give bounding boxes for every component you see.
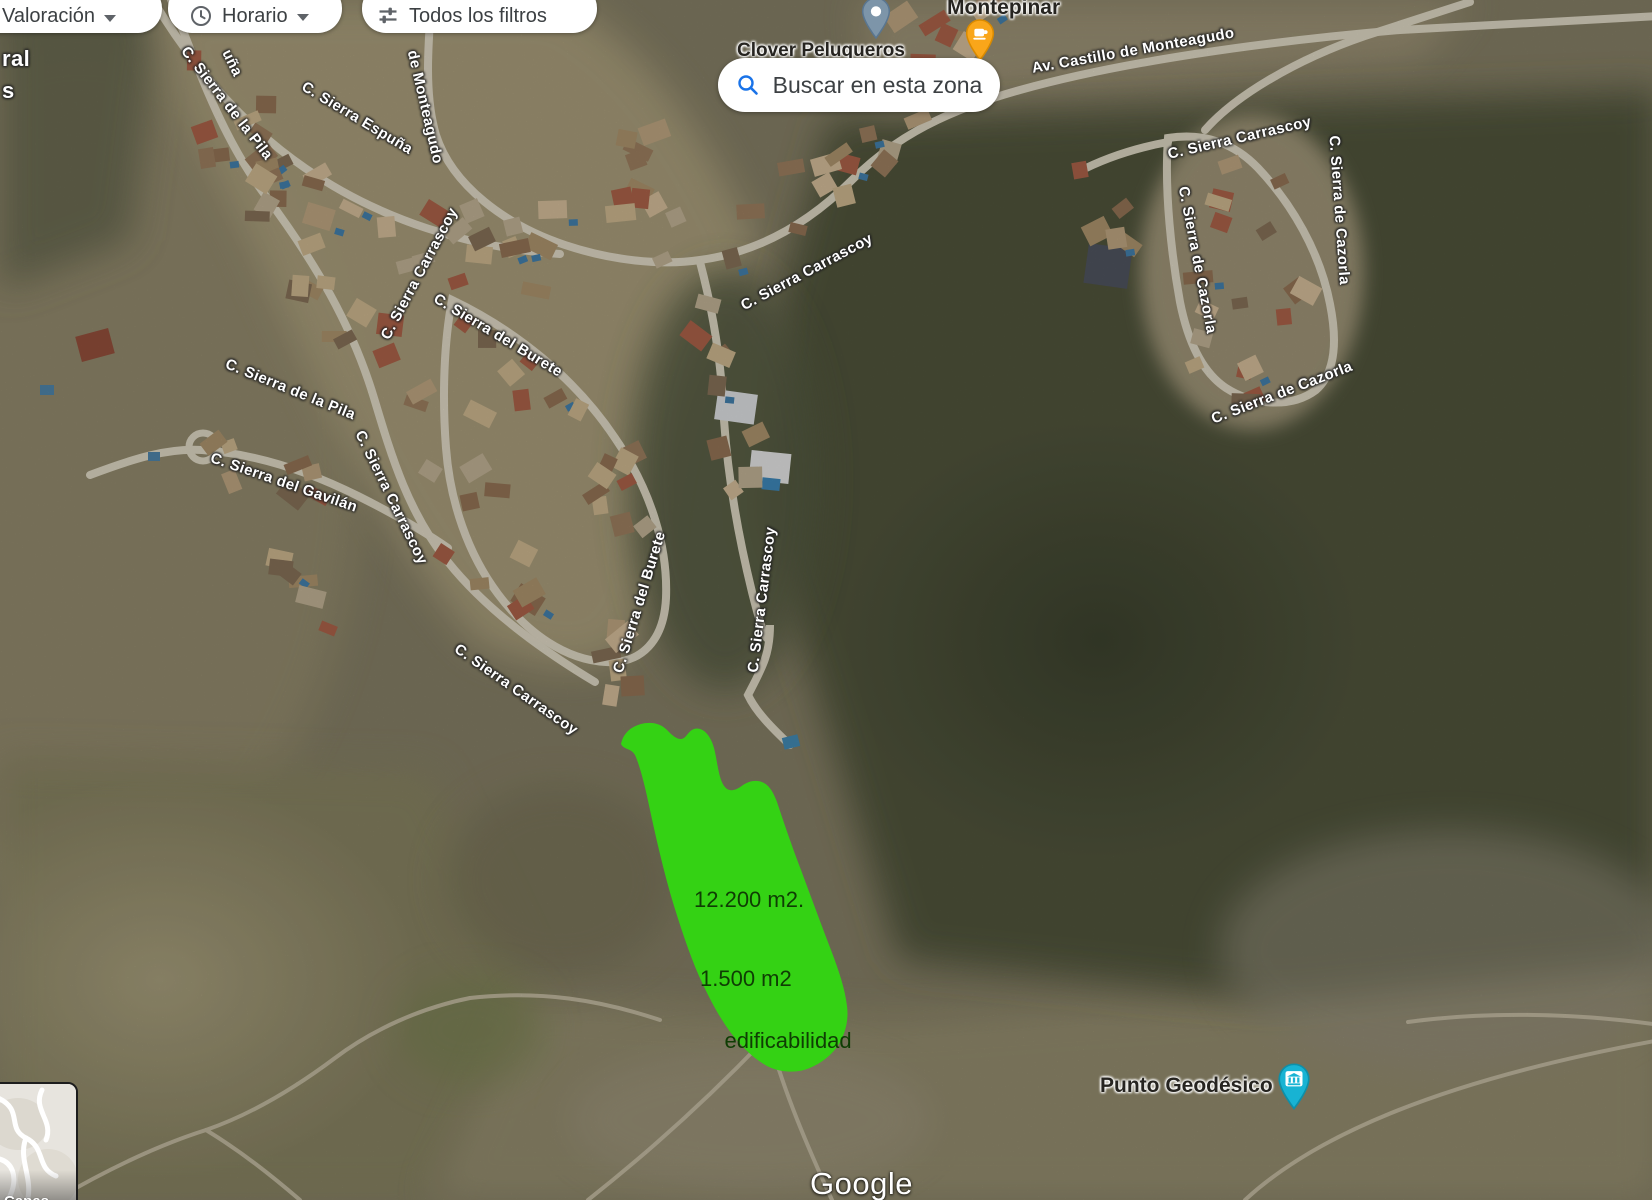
filter-all-filters-button[interactable]: Todos los filtros	[362, 0, 597, 33]
filter-valoracion-button[interactable]: Valoración	[0, 0, 162, 33]
satellite-terrain	[0, 0, 1652, 1200]
search-this-area-button[interactable]: Buscar en esta zona	[718, 58, 1000, 112]
filter-horario-label: Horario	[222, 5, 288, 28]
filter-all-filters-label: Todos los filtros	[409, 5, 547, 28]
filter-horario-button[interactable]: Horario	[168, 0, 342, 33]
geodesic-pin-icon[interactable]	[1277, 1063, 1311, 1111]
cafe-pin-icon[interactable]	[964, 19, 996, 62]
search-icon	[736, 73, 760, 97]
chevron-down-icon	[104, 15, 116, 22]
clock-icon	[189, 4, 213, 28]
chevron-down-icon	[297, 14, 309, 21]
google-watermark: Google	[810, 1166, 913, 1200]
poi-label-montepinar[interactable]: Montepinar	[947, 0, 1060, 20]
layers-widget[interactable]: Capas	[0, 1082, 78, 1200]
filter-valoracion-label: Valoración	[2, 5, 95, 28]
map-canvas[interactable]: 12.200 m2. 1.500 m2 edificabilidad C. Si…	[0, 0, 1652, 1200]
search-this-area-label: Buscar en esta zona	[773, 72, 983, 99]
poi-label-punto-geodesico[interactable]: Punto Geodésico	[1100, 1074, 1273, 1098]
layers-label: Capas	[4, 1193, 49, 1200]
tune-icon	[376, 4, 400, 28]
place-pin-icon[interactable]	[860, 0, 892, 40]
